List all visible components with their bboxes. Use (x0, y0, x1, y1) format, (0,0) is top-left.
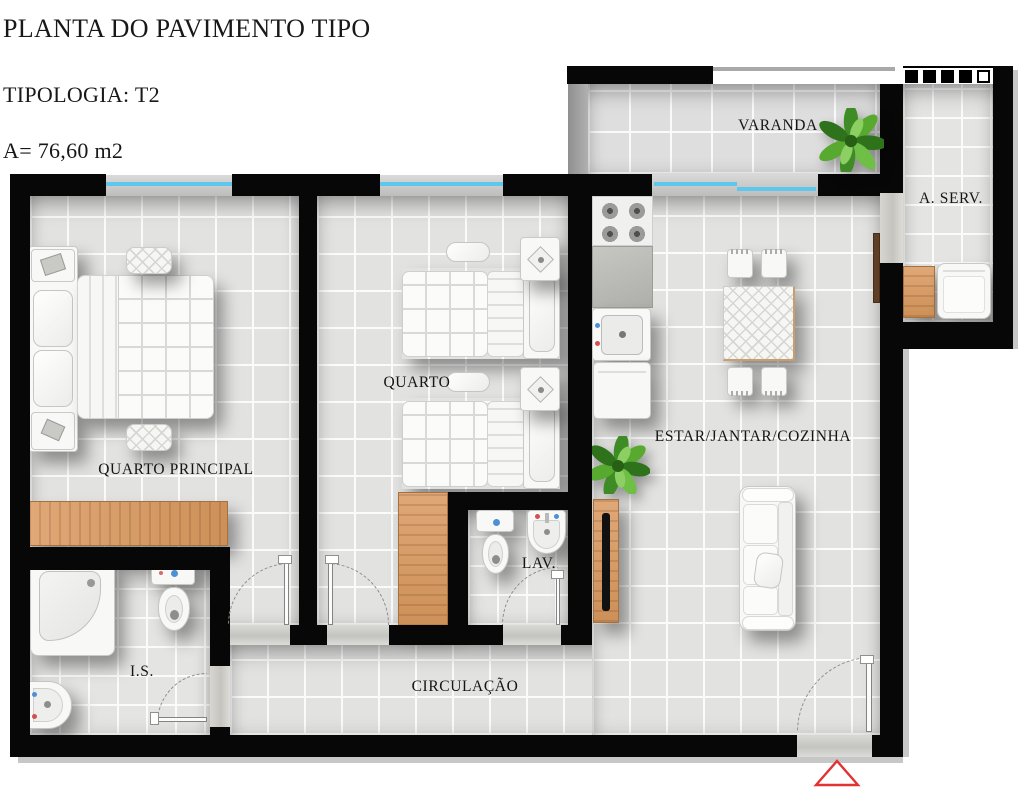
drain (87, 579, 95, 587)
label-quarto-principal: QUARTO PRINCIPAL (98, 461, 254, 479)
nightstand (520, 237, 560, 281)
sofa-cushion (743, 504, 778, 544)
wall-shelf (873, 233, 880, 303)
fridge-handle (598, 371, 646, 373)
wall-aserv-right (993, 66, 1013, 349)
label-lav: LAV. (522, 555, 556, 573)
wall-left-outer (10, 174, 30, 757)
window-mullion (905, 70, 918, 83)
toilet-bowl (158, 587, 190, 631)
sofa-armrest (742, 616, 794, 630)
bench-pouf (126, 424, 172, 451)
drain (170, 610, 179, 620)
wall (588, 174, 652, 196)
window-mullion (923, 70, 936, 83)
window-quarto-principal (106, 175, 232, 196)
threshold-entrance (797, 735, 872, 757)
book (41, 419, 66, 442)
washing-machine (937, 263, 991, 319)
book (40, 253, 66, 276)
washbasin (527, 510, 566, 554)
window-mullion (977, 70, 990, 83)
wardrobe-quarto-principal (28, 501, 228, 546)
tap-hot (535, 514, 540, 519)
washer-panel (943, 270, 985, 272)
wall-right (880, 263, 903, 757)
bedside-table (31, 412, 75, 450)
window-mullion (941, 70, 954, 83)
bed-headboard (28, 246, 78, 452)
chair-back (731, 391, 749, 396)
corner-bathtub (30, 562, 115, 656)
wall (561, 625, 592, 645)
balcony-railing (713, 67, 895, 71)
wall (389, 625, 448, 645)
wall-bottom (10, 735, 797, 757)
drain (544, 529, 550, 535)
bed-sheet (487, 271, 524, 357)
sofa-pillow (753, 551, 785, 589)
tap-hot (32, 714, 37, 719)
tap-hot (595, 341, 600, 346)
aserv-window (903, 66, 993, 84)
label-estar-jantar-cozinha: ESTAR/JANTAR/COZINHA (655, 428, 851, 446)
varanda-left-pier (568, 84, 588, 174)
faucet (545, 513, 549, 523)
tv-stand (593, 499, 619, 623)
pillow (529, 275, 555, 352)
dining-chair (727, 367, 753, 396)
page-title: PLANTA DO PAVIMENTO TIPO (3, 14, 371, 44)
bed-runner (446, 372, 490, 392)
bed-sheet (77, 275, 119, 419)
dining-chair (761, 249, 787, 278)
door-arc-entrance (797, 657, 872, 732)
fridge (593, 362, 651, 419)
faucet (619, 331, 626, 338)
threshold-aserv (880, 193, 903, 263)
plant-icon (818, 108, 884, 172)
pillow (33, 290, 73, 347)
stove-cooktop (592, 196, 653, 246)
wall-aserv-bottom (903, 322, 1013, 349)
sliding-door-glass (654, 182, 737, 186)
door-arc-is (157, 673, 207, 723)
window-quarto (380, 175, 503, 196)
decor-item (159, 571, 163, 575)
sliding-door-varanda (652, 173, 818, 196)
bedside-table (31, 249, 75, 282)
window-glass (380, 182, 503, 186)
label-circulacao: CIRCULAÇÃO (412, 678, 519, 696)
decor-item (538, 257, 544, 263)
wall-lav-top (448, 492, 568, 510)
dining-table (723, 286, 795, 361)
label-quarto: QUARTO (384, 374, 451, 392)
label-varanda: VARANDA (738, 117, 818, 135)
wall (448, 625, 503, 645)
threshold-quarto-principal (230, 625, 290, 645)
sofa-cushion (743, 586, 778, 615)
door-jamb (325, 555, 339, 564)
wall (289, 625, 327, 645)
typology-text: TIPOLOGIA: T2 (3, 82, 160, 108)
window-mullion (959, 70, 972, 83)
flush-button (171, 570, 178, 577)
wall-quarto-right (568, 174, 592, 645)
threshold-quarto (327, 625, 389, 645)
kitchen-sink (592, 308, 651, 361)
door-leaf-lav (556, 578, 560, 625)
wall (10, 547, 230, 570)
wall-varanda-top (567, 66, 713, 84)
sofa (739, 486, 796, 631)
door-jamb (278, 555, 292, 564)
sliding-door-glass (737, 187, 816, 191)
wall-bedroom-divider (299, 174, 317, 625)
label-is: I.S. (130, 663, 154, 681)
bed-sheet (487, 401, 524, 487)
flush-button (493, 519, 500, 526)
bed-quilt (402, 271, 488, 357)
chair-back (731, 249, 749, 254)
bed-runner (446, 242, 490, 262)
toilet-tank (476, 510, 514, 532)
tap-cold (554, 514, 559, 519)
wall-is-right (210, 570, 230, 666)
pillow (33, 350, 73, 407)
drain (492, 555, 500, 564)
door-jamb (150, 712, 159, 725)
wardrobe-quarto (398, 492, 448, 627)
door-arc-quarto (327, 563, 389, 625)
single-bed (402, 268, 560, 359)
nightstand (520, 367, 560, 411)
bed-quilt (402, 401, 488, 487)
door-arc-quarto-principal (228, 563, 290, 625)
area-text: A= 76,60 m2 (3, 138, 123, 164)
decor-item (538, 387, 544, 393)
wall-shadow (903, 349, 909, 757)
wall (818, 174, 880, 196)
plant-icon (586, 436, 650, 494)
threshold-lav (503, 625, 561, 645)
single-bed (402, 398, 560, 489)
floor-plan-canvas: PLANTA DO PAVIMENTO TIPO TIPOLOGIA: T2 A… (0, 0, 1018, 791)
washer-door (943, 276, 985, 313)
dining-chair (761, 367, 787, 396)
door-leaf-quarto (328, 562, 333, 625)
drain (44, 701, 51, 708)
tap-cold (595, 323, 600, 328)
kitchen-counter (592, 246, 653, 308)
pillow (529, 405, 555, 482)
tv-icon (602, 513, 610, 611)
door-leaf-entrance (866, 662, 872, 732)
sofa-armrest (742, 488, 794, 502)
door-jamb (860, 655, 874, 664)
door-leaf-is (157, 717, 207, 722)
wall-shadow (1013, 70, 1018, 349)
wall (210, 727, 230, 735)
dining-chair (727, 249, 753, 278)
entrance-marker (813, 758, 861, 788)
tap-cold (32, 692, 37, 697)
chair-back (765, 391, 783, 396)
door-leaf-quarto-principal (284, 562, 289, 625)
wall-shadow (18, 757, 903, 763)
chair-back (765, 249, 783, 254)
bed-quilt (118, 275, 214, 419)
bench-pouf (126, 247, 172, 274)
label-a-serv: A. SERV. (919, 190, 983, 208)
threshold-is (210, 666, 230, 727)
double-bed (77, 275, 214, 419)
laundry-counter (903, 266, 935, 318)
window-glass (106, 182, 232, 186)
door-arc-lav (502, 567, 558, 625)
